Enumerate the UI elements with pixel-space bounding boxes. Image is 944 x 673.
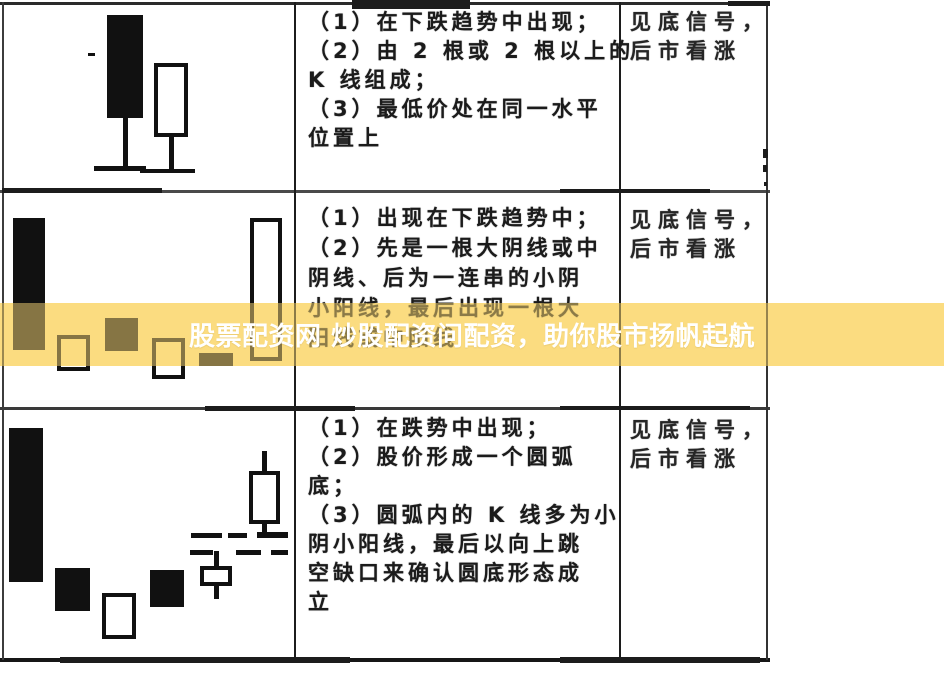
description-line: （2）由 2 根或 2 根以上的 (308, 37, 620, 66)
bullish-candle (102, 593, 136, 639)
bullish-candle (249, 471, 280, 524)
gap-dash-line (271, 550, 288, 555)
signal-line: 见底信号， (630, 8, 766, 37)
scan-artifact-mark (560, 657, 760, 663)
candle-lower-wick (214, 586, 219, 599)
description-line: （2）先是一根大阴线或中 (308, 233, 620, 263)
description-line: 阴线、后为一连串的小阴 (308, 263, 620, 293)
scan-artifact-mark (352, 0, 470, 9)
description-line: 位置上 (308, 124, 620, 153)
description-cell-0: （1）在下跌趋势中出现； （2）由 2 根或 2 根以上的 K 线组成； （3）… (308, 8, 620, 153)
gap-dash-line (236, 550, 261, 555)
scanned-table-page: （1）在下跌趋势中出现； （2）由 2 根或 2 根以上的 K 线组成； （3）… (0, 0, 944, 673)
scan-artifact-mark (728, 1, 770, 6)
description-line: （1）出现在下跌趋势中； (308, 203, 620, 233)
signal-line: 后市看涨 (630, 445, 766, 474)
description-line: （3）圆弧内的 K 线多为小 (308, 501, 620, 530)
description-line: （2）股价形成一个圆弧 (308, 443, 620, 472)
scan-artifact-mark (764, 182, 767, 186)
gap-dash-line (228, 533, 247, 538)
signal-line: 后市看涨 (630, 37, 766, 66)
scan-artifact-mark (205, 406, 355, 411)
description-line: （1）在跌势中出现； (308, 414, 620, 443)
scan-artifact-mark (60, 657, 350, 663)
signal-line: 见底信号， (630, 206, 766, 235)
description-line: 立 (308, 588, 620, 617)
description-line: 阴小阳线，最后以向上跳 (308, 530, 620, 559)
bearish-candle (9, 428, 43, 582)
candle-upper-wick (214, 551, 219, 566)
signal-cell-1: 见底信号， 后市看涨 (630, 206, 766, 264)
description-line: （1）在下跌趋势中出现； (308, 8, 620, 37)
promo-banner-text[interactable]: 股票配资网 炒股配资问配资，助你股市扬帆起航 (0, 303, 944, 366)
bullish-candle (200, 566, 232, 586)
gap-dash-line (191, 533, 222, 538)
scan-artifact-mark (560, 406, 750, 410)
scan-artifact-mark (763, 149, 768, 158)
description-cell-2: （1）在跌势中出现； （2）股价形成一个圆弧 底； （3）圆弧内的 K 线多为小… (308, 414, 620, 617)
description-line: 空缺口来确认圆底形态成 (308, 559, 620, 588)
scan-artifact-mark (763, 165, 767, 172)
gap-dash-line (190, 550, 213, 555)
gap-dash-line (257, 532, 288, 538)
signal-line: 后市看涨 (630, 235, 766, 264)
signal-cell-2: 见底信号， 后市看涨 (630, 416, 766, 474)
scan-artifact-mark (560, 189, 710, 193)
signal-cell-0: 见底信号， 后市看涨 (630, 8, 766, 66)
bearish-candle (55, 568, 90, 611)
description-line: K 线组成； (308, 66, 620, 95)
candle-upper-wick (262, 451, 267, 471)
description-line: （3）最低价处在同一水平 (308, 95, 620, 124)
signal-line: 见底信号， (630, 416, 766, 445)
scan-artifact-mark (2, 188, 162, 193)
bearish-candle (150, 570, 184, 607)
description-line: 底； (308, 472, 620, 501)
